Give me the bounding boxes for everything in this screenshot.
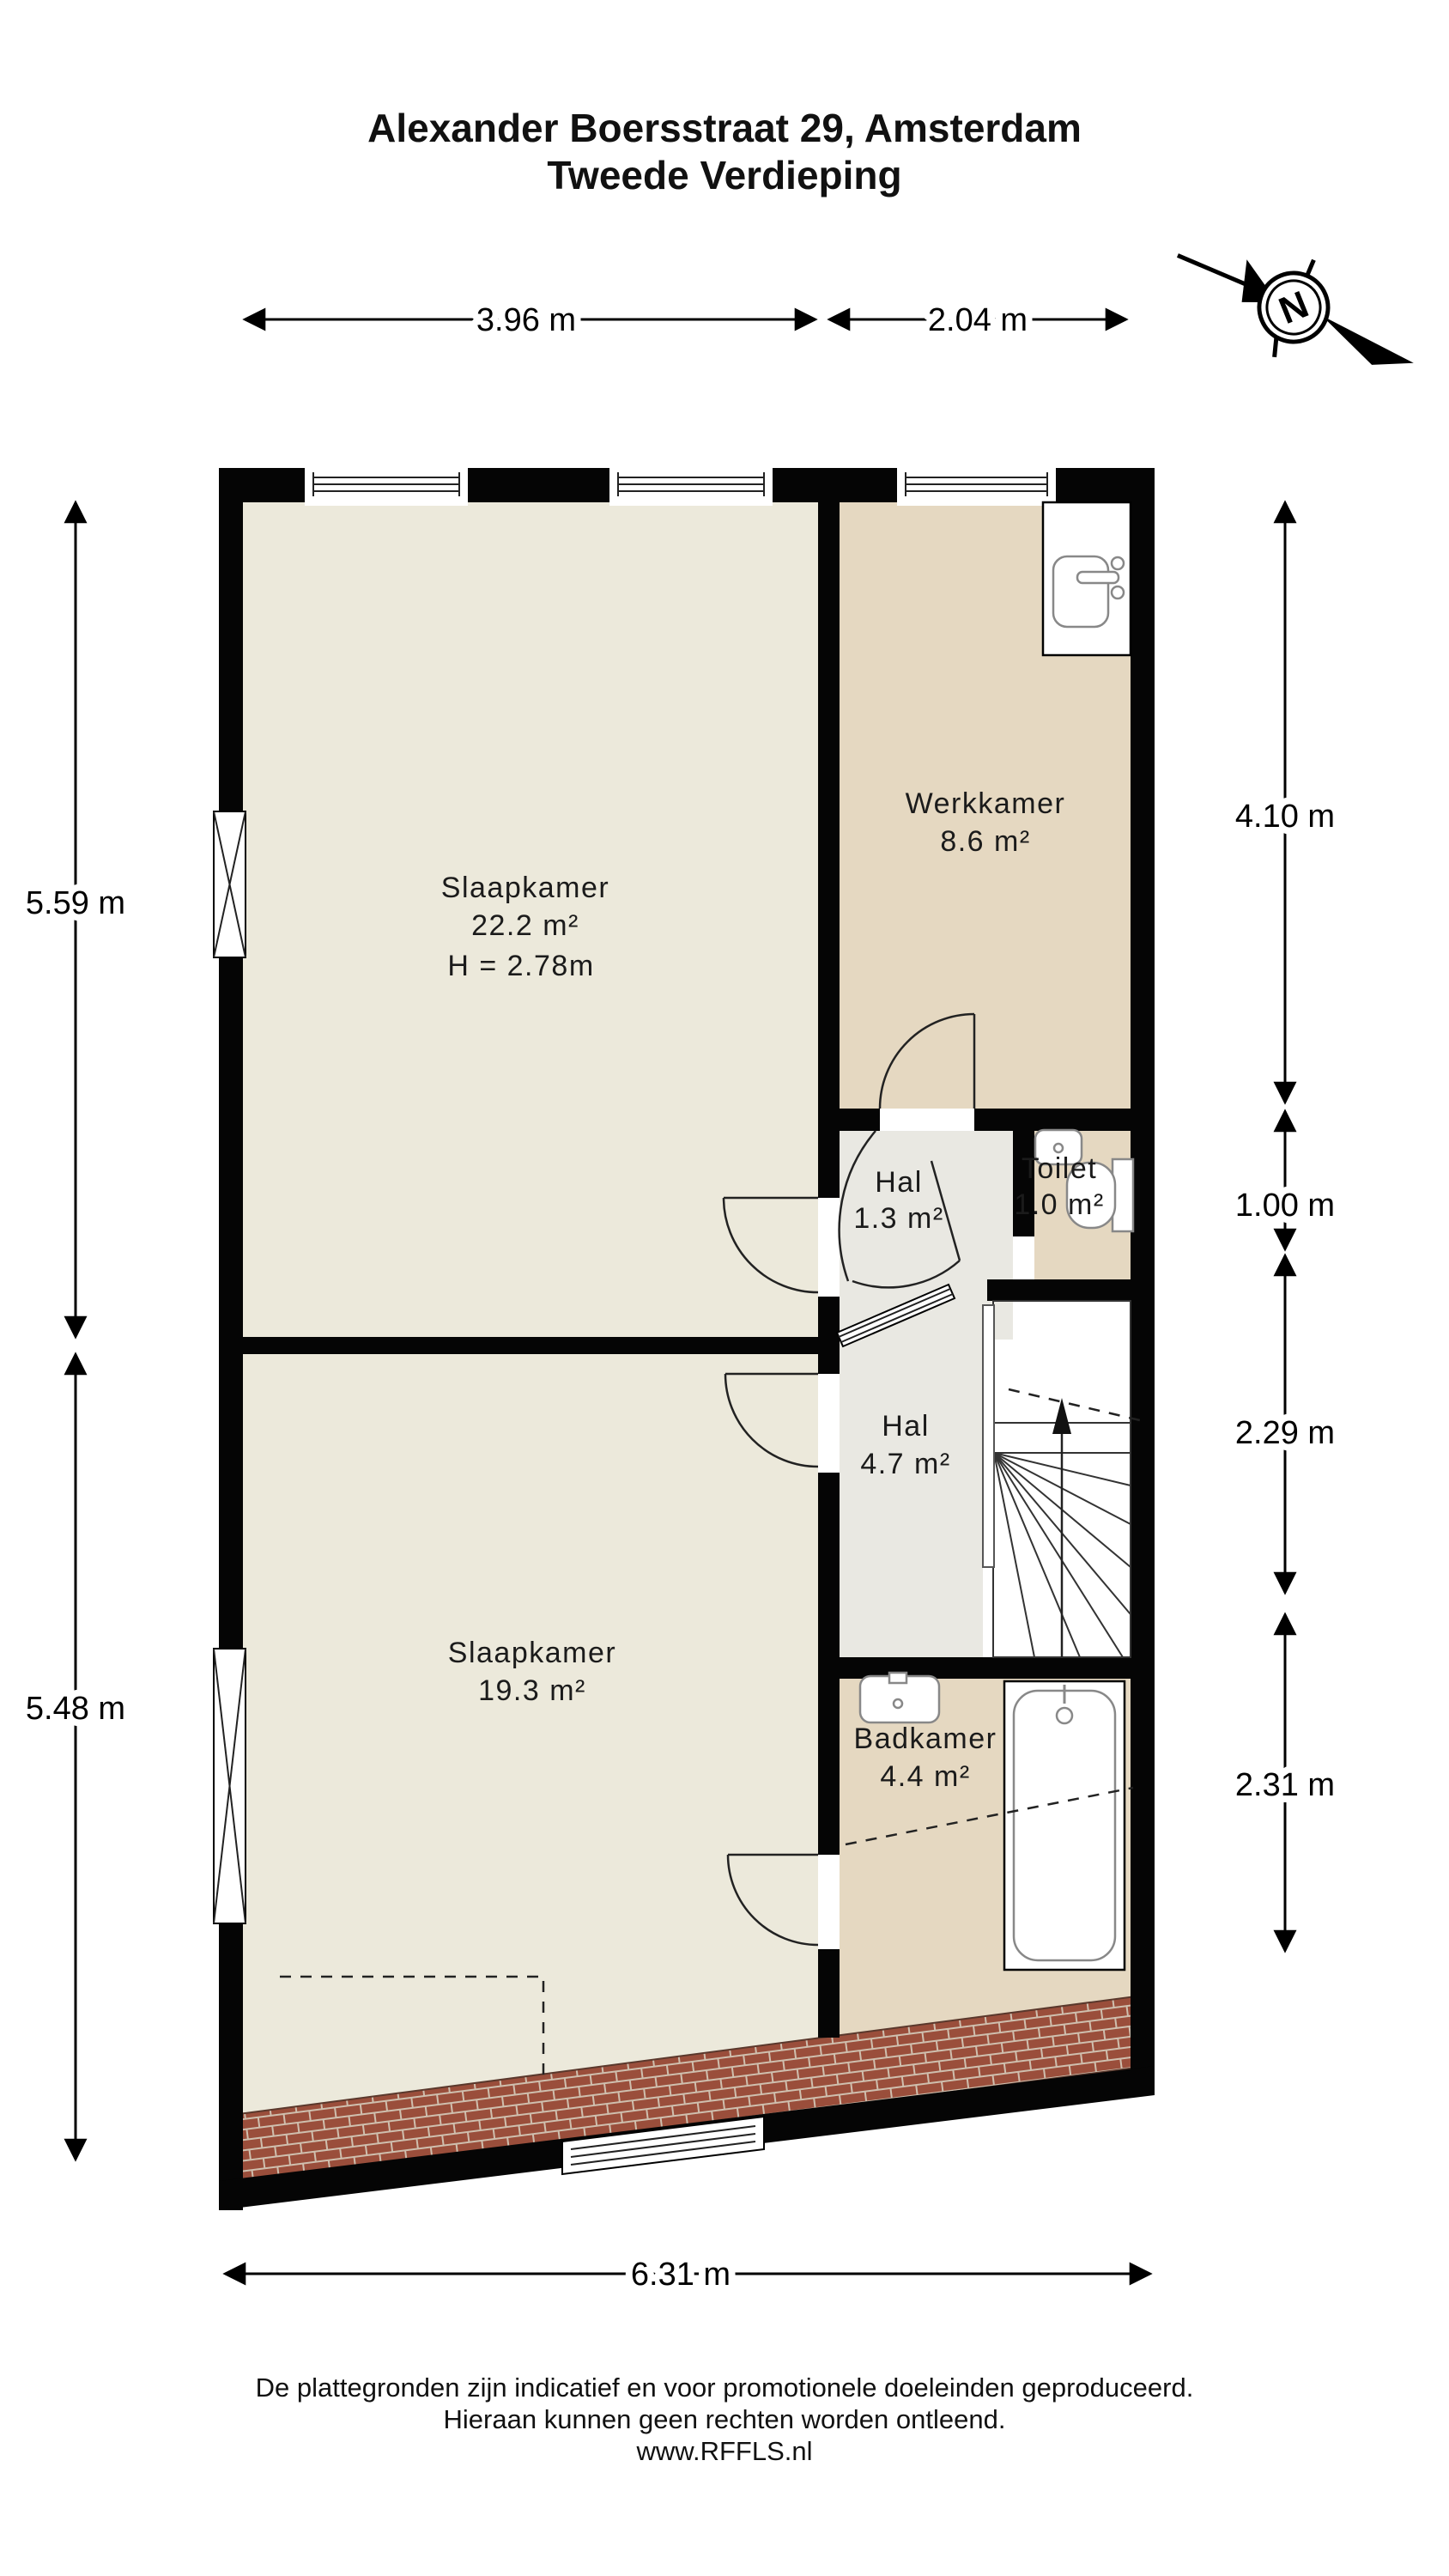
dimension-label: 3.96 m	[476, 302, 576, 338]
room-area: 1.3 m²	[853, 1202, 943, 1235]
stairs-icon	[983, 1301, 1143, 1657]
window-icon	[897, 465, 1056, 506]
sink-icon	[860, 1673, 939, 1722]
dimension-right-1: 4.10 m	[1235, 502, 1335, 1103]
dimension-label: 5.59 m	[26, 885, 125, 921]
room-label: Toilet	[1022, 1152, 1097, 1185]
window-icon	[305, 465, 468, 506]
footer-line-1: De plattegronden zijn indicatief en voor…	[0, 2372, 1449, 2403]
slaapkamer-onder-floor	[239, 1354, 818, 2114]
room-fills	[239, 502, 1131, 2114]
room-area: 22.2 m²	[471, 909, 579, 942]
room-label: Badkamer	[854, 1722, 997, 1755]
dimension-bottom: 6.31 m	[225, 2257, 1150, 2293]
room-label: Slaapkamer	[441, 872, 609, 904]
dimension-label: 5.48 m	[26, 1691, 125, 1727]
room-area: 19.3 m²	[478, 1674, 586, 1707]
stairs-up-arrow-icon	[1052, 1398, 1071, 1434]
compass-north-icon: N	[1156, 210, 1436, 408]
dimension-right-2: 1.00 m	[1235, 1111, 1335, 1249]
bathtub-icon	[1004, 1681, 1125, 1970]
footer-website-link: www.RFFLS.nl	[0, 2435, 1449, 2467]
room-label: Werkkamer	[906, 787, 1066, 820]
room-label: Slaapkamer	[448, 1637, 616, 1669]
dimension-label: 1.00 m	[1235, 1188, 1335, 1224]
room-label: Hal	[882, 1410, 930, 1443]
sink-icon	[1043, 502, 1131, 655]
stair-railing	[983, 1305, 994, 1567]
dimension-left-2: 5.48 m	[26, 1354, 125, 2160]
dimension-right-3: 2.29 m	[1235, 1255, 1335, 1593]
stairs-walkline-dashed	[1009, 1389, 1143, 1421]
window-icon	[609, 465, 773, 506]
room-label: Hal	[875, 1166, 923, 1199]
room-area: 4.4 m²	[880, 1760, 970, 1793]
dimension-label: 2.31 m	[1235, 1767, 1335, 1803]
dimension-top-1: 3.96 m	[245, 302, 815, 338]
floorplan-drawing: Slaapkamer 22.2 m² H = 2.78m Werkkamer 8…	[0, 0, 1449, 2576]
dimension-label: 2.04 m	[928, 302, 1028, 338]
footer-disclaimer: De plattegronden zijn indicatief en voor…	[0, 2372, 1449, 2467]
dimension-label: 2.29 m	[1235, 1415, 1335, 1451]
room-area: 8.6 m²	[940, 825, 1030, 858]
room-area: 1.0 m²	[1014, 1188, 1104, 1221]
footer-line-2: Hieraan kunnen geen rechten worden ontle…	[0, 2403, 1449, 2435]
dimension-top-2: 2.04 m	[829, 302, 1126, 338]
floorplan-page: Alexander Boersstraat 29, Amsterdam Twee…	[0, 0, 1449, 2576]
room-area: 4.7 m²	[860, 1448, 950, 1480]
dimension-label: 4.10 m	[1235, 799, 1335, 835]
dimension-left-1: 5.59 m	[26, 502, 125, 1337]
room-ceiling-height: H = 2.78m	[447, 950, 594, 982]
dimension-label: 6.31 m	[631, 2257, 731, 2293]
window-icon	[214, 811, 246, 957]
dimension-right-4: 2.31 m	[1235, 1614, 1335, 1951]
window-icon	[214, 1649, 246, 1923]
